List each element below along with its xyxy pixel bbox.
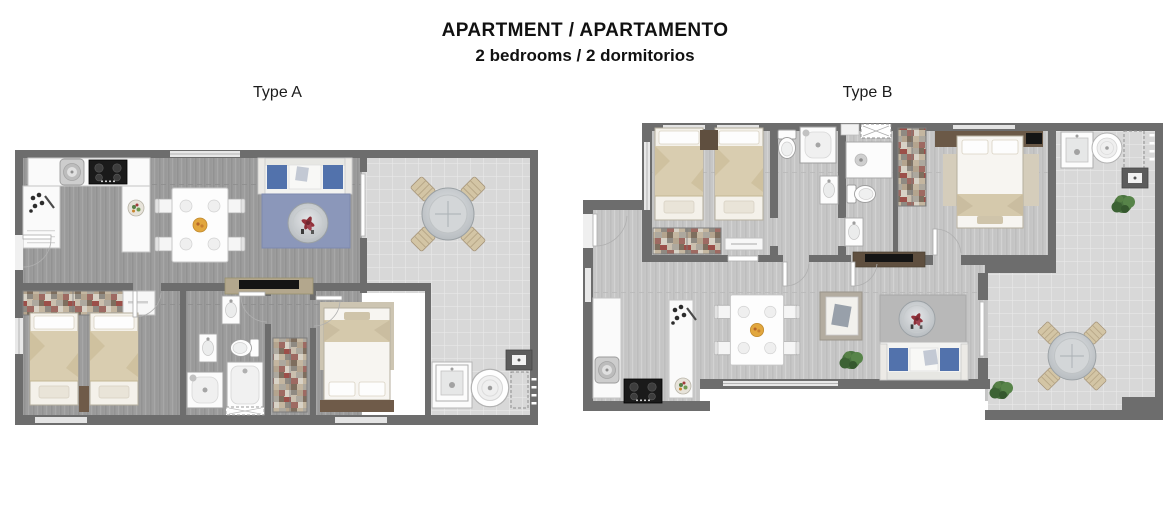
floor-plans-graphic	[0, 0, 1170, 505]
salad-bowl	[675, 378, 691, 394]
wall-unit	[1122, 168, 1148, 188]
type-a-master-bedroom	[320, 302, 394, 412]
nightstand	[79, 386, 89, 412]
nightstand	[700, 130, 718, 150]
washing-machine	[471, 369, 509, 407]
shower	[800, 127, 836, 163]
kitchen-peninsula	[122, 186, 150, 252]
bathroom-sink	[820, 176, 838, 204]
sliding-door	[980, 302, 984, 356]
balcony-table	[1037, 321, 1106, 390]
bathroom-sink	[199, 334, 217, 362]
coffee-table	[899, 301, 935, 337]
sofa	[258, 158, 352, 194]
blue-cushion	[940, 348, 959, 371]
laundry-sink	[436, 365, 468, 401]
tv	[1026, 133, 1042, 144]
double-bed	[957, 136, 1023, 228]
fridge	[595, 357, 619, 383]
bathroom-sink	[222, 296, 240, 324]
floor-plan-type-a	[15, 150, 538, 425]
salad-bowl	[128, 200, 144, 216]
floor-plan-type-b	[583, 118, 1163, 423]
washing-machine	[1092, 133, 1122, 163]
tv	[239, 280, 299, 289]
blue-cushion	[267, 165, 287, 189]
single-bed	[90, 313, 138, 405]
floor-plan-sheet: APARTMENT / APARTAMENTO 2 bedrooms / 2 d…	[0, 0, 1170, 505]
toilet	[778, 130, 796, 159]
single-bed	[30, 313, 78, 405]
blue-cushion	[889, 348, 908, 371]
bathroom-sink	[845, 218, 863, 246]
laundry-sink	[1061, 132, 1093, 168]
blue-cushion	[323, 165, 343, 189]
fridge	[60, 159, 84, 185]
stove	[89, 160, 127, 184]
stove	[624, 379, 662, 403]
type-b-armchair-niche	[820, 292, 862, 340]
double-bed	[324, 308, 390, 400]
tv	[865, 254, 913, 262]
sliding-door	[728, 256, 758, 261]
shower-tray	[846, 142, 892, 178]
sofa	[880, 342, 968, 380]
coffee-table	[288, 203, 328, 243]
single-bed	[715, 128, 763, 220]
toilet	[231, 339, 260, 357]
toilet	[847, 185, 876, 203]
bed-bench	[320, 400, 394, 412]
sliding-door	[361, 174, 365, 236]
shower	[187, 372, 223, 408]
wall-unit	[506, 350, 532, 370]
single-bed	[655, 128, 703, 220]
balcony-table	[410, 176, 485, 251]
